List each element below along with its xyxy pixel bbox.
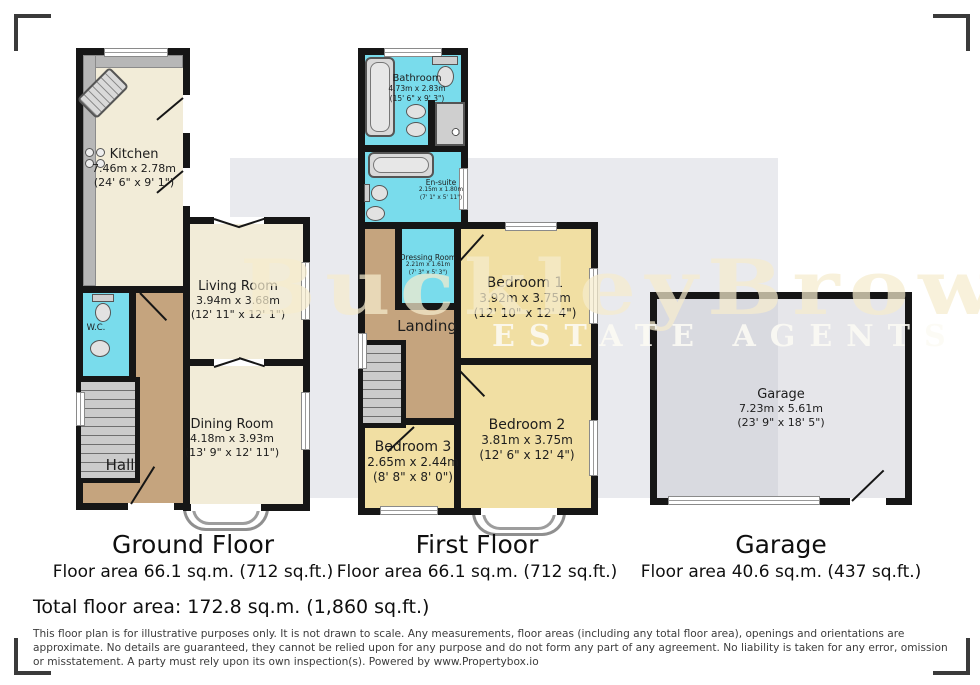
wc-toilet-tank [92, 294, 114, 302]
bedroom2-window-side [589, 420, 598, 476]
bathroom-basin-2 [406, 122, 426, 137]
bathroom-divider-wall [428, 100, 435, 152]
stairs-window [76, 392, 85, 426]
bathroom-shower [435, 102, 465, 146]
bedroom1-window-top [505, 222, 557, 231]
label-living: Living Room 3.94m x 3.68m (12' 11" x 12'… [191, 279, 285, 322]
bathroom-basin-1 [406, 104, 426, 119]
floorplan-page: Kitchen 7.46m x 2.78m (24' 6" x 9' 1") L… [0, 0, 980, 685]
label-wc: W.C. [87, 323, 106, 333]
landing-window [358, 333, 367, 369]
garage-area: Floor area 40.6 sq.m. (437 sq.ft.) [641, 562, 922, 582]
label-landing: Landing [397, 317, 457, 335]
kitchen-window [104, 48, 168, 57]
dining-window [301, 392, 310, 450]
ensuite-bathtub [368, 152, 434, 178]
first-floor-area: Floor area 66.1 sq.m. (712 sq.ft.) [337, 562, 618, 582]
corner-mark-top-right [933, 14, 970, 51]
label-garage: Garage 7.23m x 5.61m (23' 9" x 18' 5") [737, 387, 824, 430]
first-floor-title: First Floor [416, 530, 539, 559]
garage-door-strip [668, 496, 820, 505]
label-bathroom: Bathroom 4.73m x 2.83m (15' 6" x 9' 3") [388, 73, 445, 104]
bedroom3-window [380, 506, 438, 515]
label-bedroom1: Bedroom 1 3.92m x 3.75m (12' 10" x 12' 4… [474, 275, 577, 321]
wc-basin [90, 340, 110, 357]
ground-floor-area: Floor area 66.1 sq.m. (712 sq.ft.) [53, 562, 334, 582]
garage-title: Garage [735, 530, 827, 559]
entrance-door-opening [128, 503, 174, 510]
corner-mark-top-left [14, 14, 51, 51]
label-ensuite: En-suite 2.15m x 1.80m (7' 1" x 5' 11") [419, 178, 463, 202]
ensuite-toilet-tank [364, 184, 370, 202]
kitchen-door-opening-1 [183, 95, 190, 133]
ground-floor-title: Ground Floor [112, 530, 274, 559]
living-window [301, 262, 310, 320]
bedroom1-window-side [589, 268, 598, 324]
label-dining: Dining Room 4.18m x 3.93m (13' 9" x 12' … [185, 417, 279, 460]
ensuite-basin [366, 206, 385, 221]
kitchen-door-opening-2 [183, 168, 190, 206]
wc-toilet [95, 303, 111, 322]
disclaimer-text: This floor plan is for illustrative purp… [33, 627, 958, 670]
bedroom2-bay-opening [481, 508, 557, 515]
label-dressing: Dressing Room 2.21m x 1.61m (7' 3" x 5' … [400, 253, 456, 277]
ensuite-toilet [371, 185, 388, 201]
bathroom-toilet-tank [432, 56, 458, 65]
label-bedroom2: Bedroom 2 3.81m x 3.75m (12' 6" x 12' 4"… [479, 417, 574, 463]
label-kitchen: Kitchen 7.46m x 2.78m (24' 6" x 9' 1") [92, 147, 176, 190]
dining-bay-opening [191, 504, 261, 511]
label-hall: Hall [106, 456, 135, 474]
label-bedroom3: Bedroom 3 2.65m x 2.44m (8' 8" x 8' 0") [367, 439, 459, 485]
total-floor-area: Total floor area: 172.8 sq.m. (1,860 sq.… [33, 596, 429, 618]
